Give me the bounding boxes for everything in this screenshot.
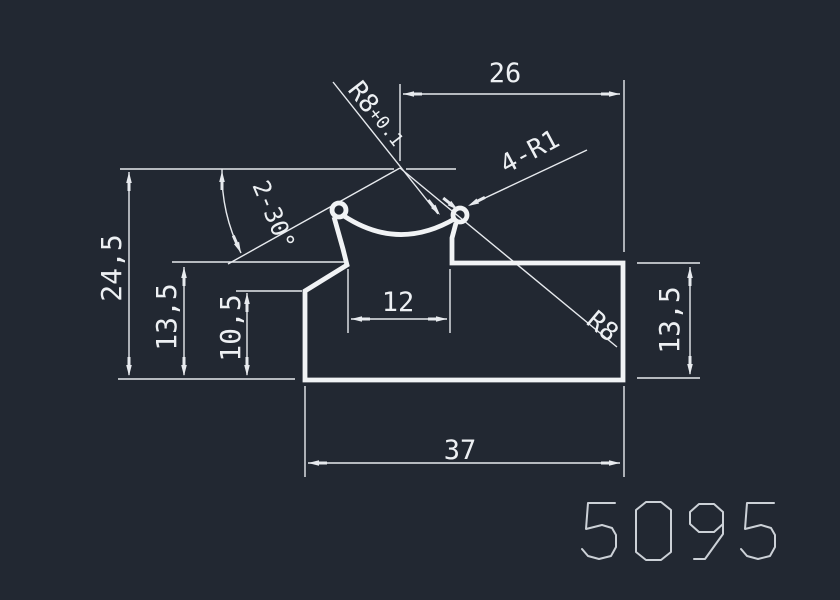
angle-dimension-arc bbox=[222, 169, 241, 253]
part-number bbox=[582, 502, 775, 560]
arrowhead-16 bbox=[467, 195, 486, 209]
arrowhead-1 bbox=[126, 357, 132, 376]
arrowhead-6 bbox=[687, 267, 693, 286]
arrowhead-11 bbox=[428, 316, 447, 322]
arrowhead-17 bbox=[219, 171, 225, 190]
arrowhead-18 bbox=[231, 235, 244, 255]
arrowhead-3 bbox=[181, 357, 187, 376]
dim-37: 37 bbox=[444, 435, 477, 466]
arrowhead-7 bbox=[687, 356, 693, 375]
left-lip-curl bbox=[332, 203, 346, 217]
arrowhead-8 bbox=[403, 91, 422, 97]
arrowhead-10 bbox=[351, 316, 370, 322]
profile-outline bbox=[305, 217, 623, 380]
dim-13-5-left: 13,5 bbox=[150, 283, 183, 350]
arrowhead-9 bbox=[601, 91, 620, 97]
part-number-digit-9 bbox=[694, 518, 723, 559]
part-number-digit-5 bbox=[582, 503, 616, 559]
part-number-digit-5 bbox=[741, 503, 775, 559]
arrowhead-12 bbox=[308, 460, 327, 466]
cad-drawing: 2624,513,510,5123713,54-R1R82-30°R8+0.1 bbox=[0, 0, 840, 600]
arrowhead-0 bbox=[126, 172, 132, 191]
dim-10-5: 10,5 bbox=[214, 294, 247, 361]
dim-2-30: 2-30° bbox=[246, 176, 300, 253]
arrowhead-2 bbox=[181, 267, 187, 286]
dim-r8: R8 bbox=[581, 305, 624, 348]
arrowhead-13 bbox=[601, 460, 620, 466]
dim-13-5-right: 13,5 bbox=[653, 286, 686, 353]
dim-line-22 bbox=[228, 168, 400, 264]
cad-viewport: 2624,513,510,5123713,54-R1R82-30°R8+0.1 bbox=[0, 0, 840, 600]
part-number-digit-9 bbox=[690, 504, 723, 532]
profile-groove-arc bbox=[344, 216, 456, 235]
part-number-digit-0 bbox=[636, 502, 671, 560]
dim-24-5: 24,5 bbox=[95, 234, 128, 301]
dim-12: 12 bbox=[382, 287, 415, 318]
dim-4-r1: 4-R1 bbox=[495, 124, 564, 180]
dim-26: 26 bbox=[489, 58, 522, 89]
right-lip-curl bbox=[453, 208, 467, 222]
